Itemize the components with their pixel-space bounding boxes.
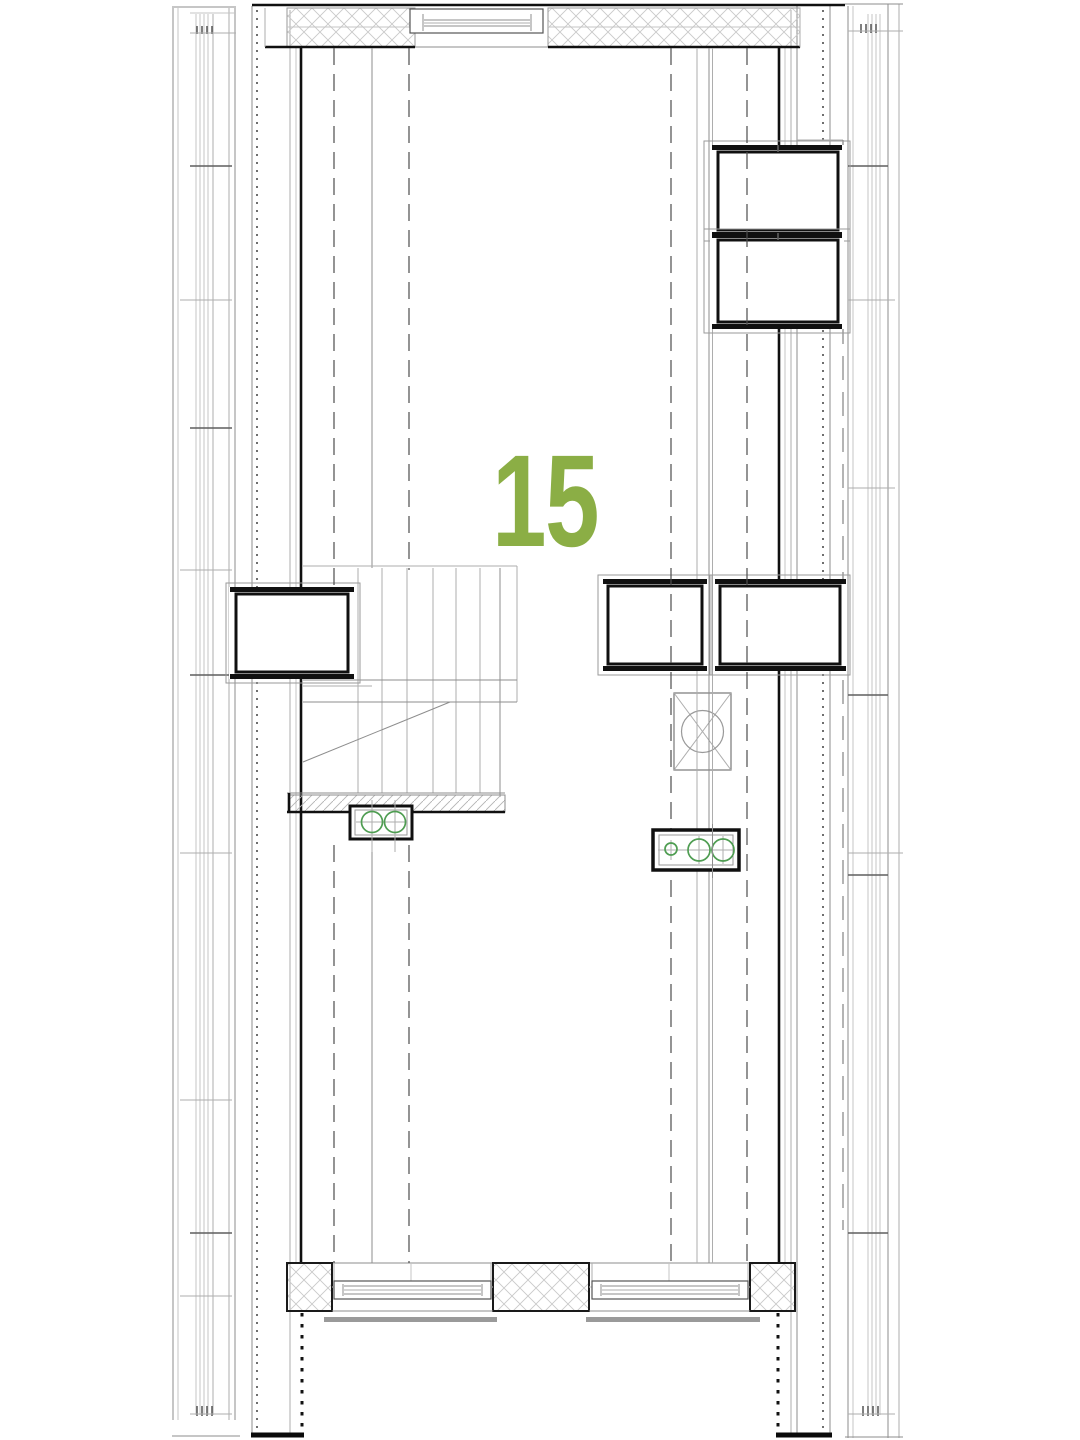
lower-level-extension-left [251,1313,304,1435]
panel-joint-marks-top [848,24,903,33]
roof-window-top-2 [704,229,850,333]
stair-break-line [303,702,450,762]
overhang-edge [586,1317,760,1322]
top-window [410,9,543,33]
roof-window-stair [226,583,360,683]
masonry-pier-hatch [287,1263,332,1311]
bottom-window-right [592,1281,748,1299]
roof-windows [226,141,850,683]
panel-joint-marks-bottom [190,1406,232,1416]
vent-fixture-stair [350,800,412,852]
roof-window-mid-2 [710,575,850,675]
chimney-symbol [674,693,731,770]
left-wall [252,6,301,1434]
bottom-wall [287,1263,795,1322]
roof-window-mid-1 [598,575,712,675]
top-wall [252,5,845,47]
vent-fixture-main [653,824,739,878]
far-left-strip [172,7,240,1436]
floor-plan-page: 15 [0,0,1080,1440]
unit-number-label: 15 [492,427,598,574]
masonry-pier-hatch [493,1263,589,1311]
bottom-window-left [334,1281,491,1299]
overhang-edge [324,1317,497,1322]
roof-window-top-1 [704,141,850,241]
far-right-strip [845,4,903,1438]
floor-plan-canvas: 15 [0,0,1080,1440]
masonry-pier-hatch [750,1263,795,1311]
